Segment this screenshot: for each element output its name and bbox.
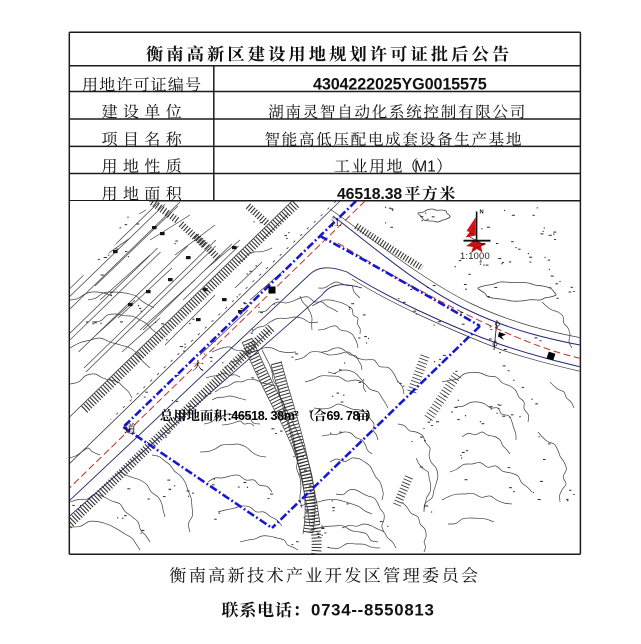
svg-text:46518.38: 46518.38 <box>337 186 402 203</box>
svg-text::46518. 38m²: :46518. 38m² <box>228 409 299 423</box>
svg-text:M1: M1 <box>414 158 436 175</box>
svg-text:69. 78: 69. 78 <box>327 409 360 423</box>
svg-text:1:1000: 1:1000 <box>460 250 490 261</box>
svg-text:N: N <box>480 210 484 216</box>
svg-text:4304222025YG0015575: 4304222025YG0015575 <box>313 75 487 93</box>
svg-text:0734--8550813: 0734--8550813 <box>311 601 435 620</box>
